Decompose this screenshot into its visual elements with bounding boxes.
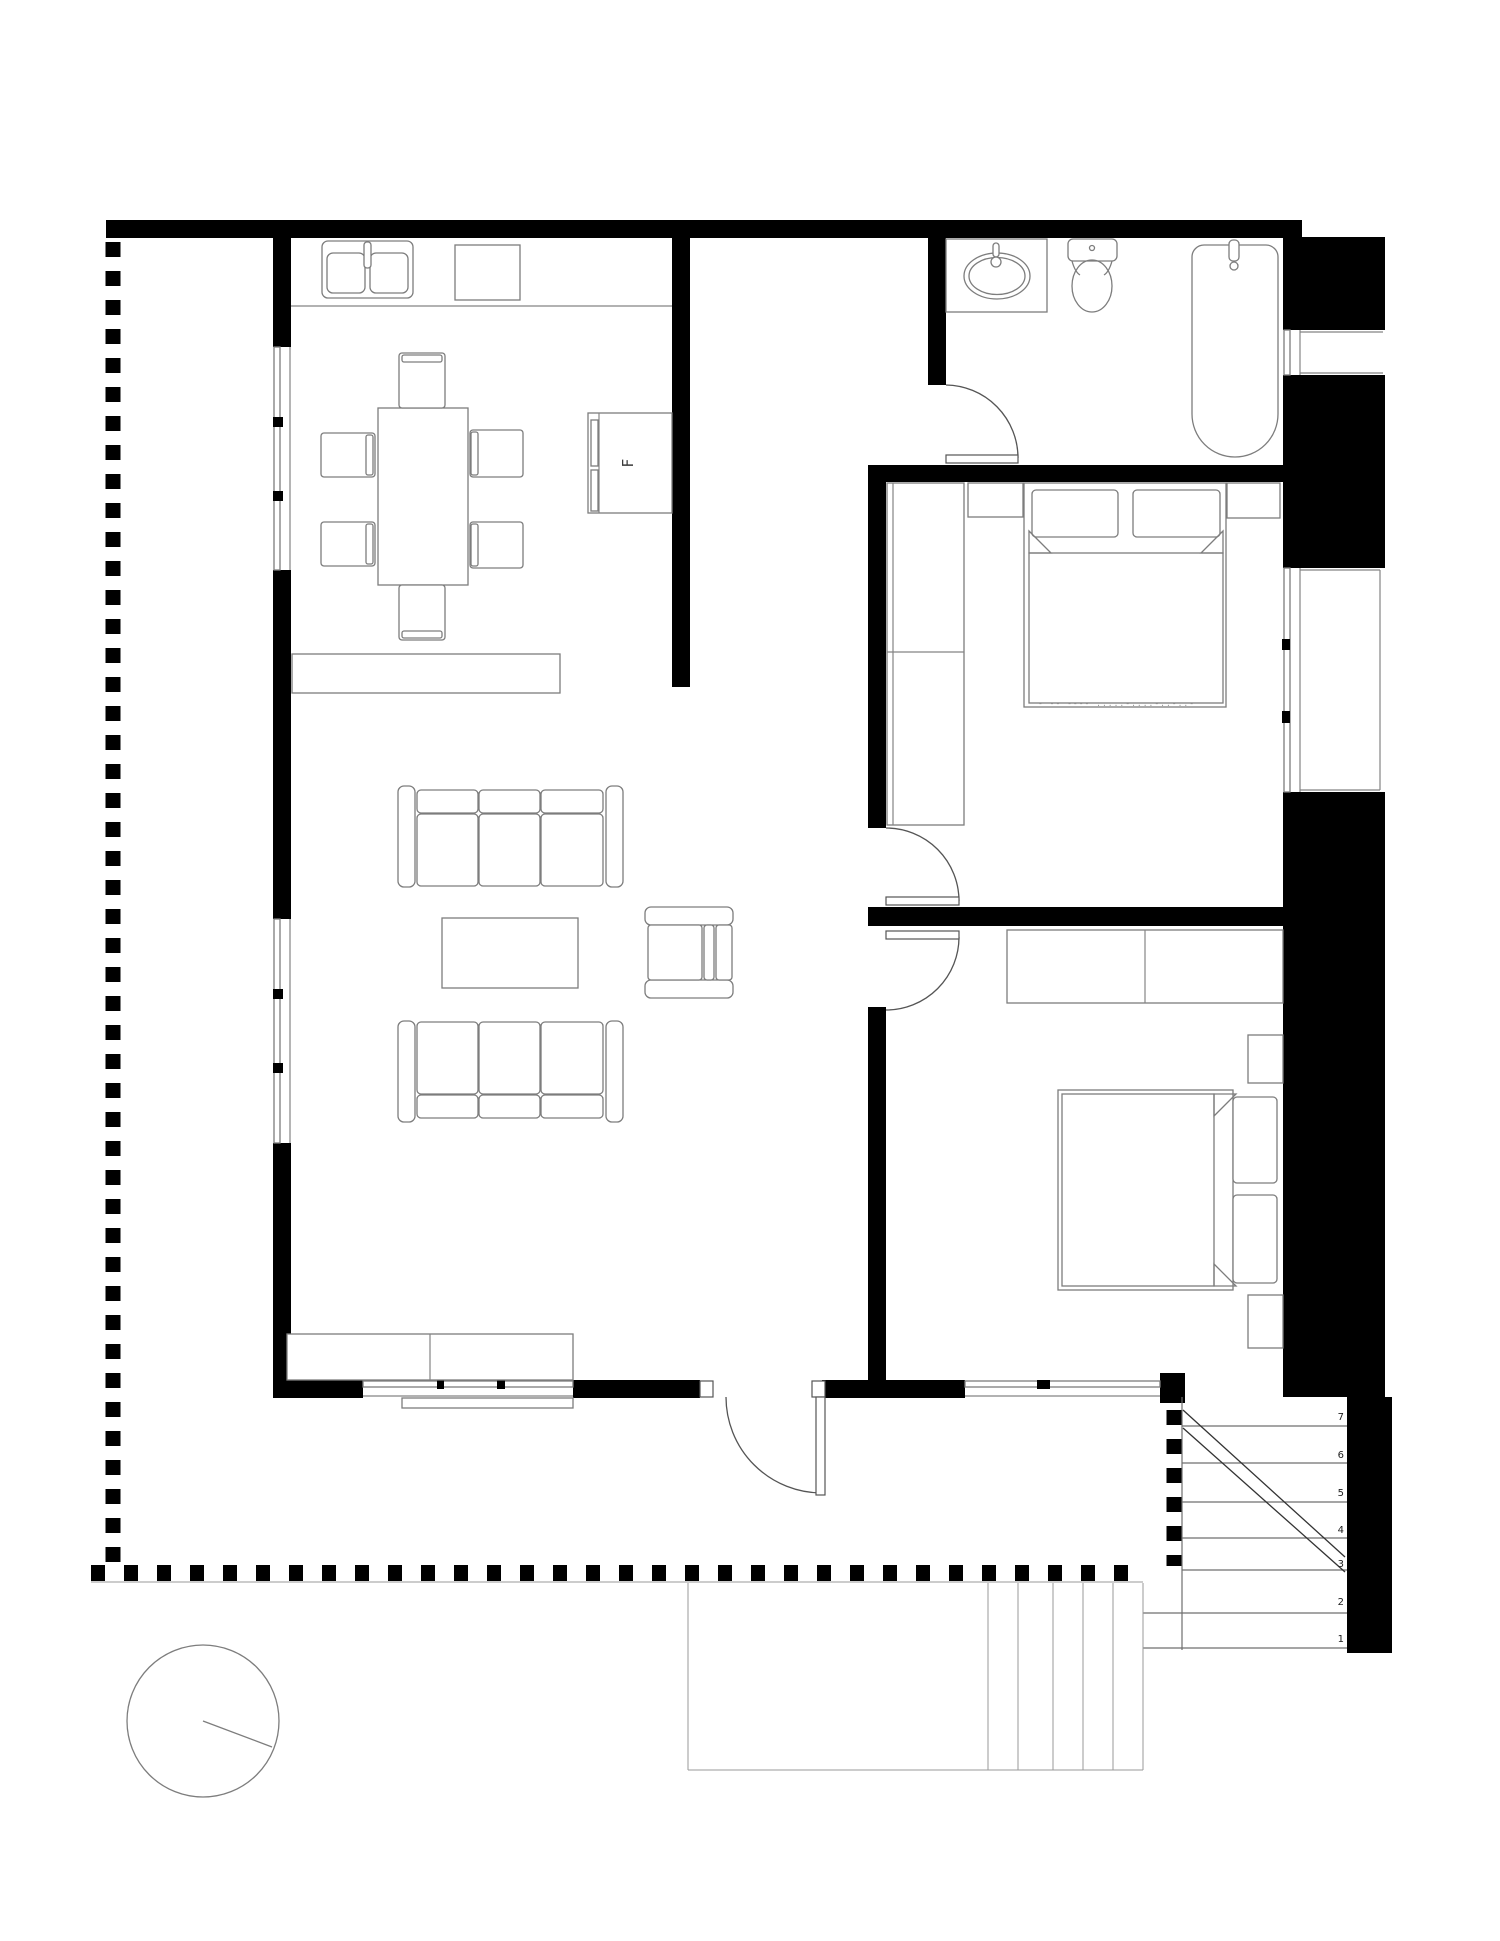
- dining-chair-left-1: [321, 433, 375, 477]
- stair-number: 4: [1338, 1525, 1344, 1536]
- wall-left-middle: [273, 570, 291, 919]
- toilet: [1068, 239, 1117, 312]
- bedroom2-closet: [1007, 930, 1283, 1003]
- window-mullion: [497, 1380, 505, 1389]
- bedroom1-nightstand-left: [968, 483, 1023, 517]
- bedroom2-bed: [1058, 1090, 1277, 1290]
- staircase: 7 6 5 4 3 2 1: [1143, 1397, 1347, 1650]
- window-mullion: [273, 989, 283, 999]
- dining-chair-right-1: [470, 430, 523, 477]
- window-mullion: [273, 417, 283, 427]
- stair-number: 5: [1338, 1488, 1344, 1499]
- sofa-south: [398, 1021, 623, 1122]
- sofa-back-cushion: [541, 1095, 603, 1118]
- wall-right-upper: [1283, 237, 1385, 330]
- wall-bottom-corner-stub: [1160, 1373, 1185, 1403]
- wall-bedroom2-left: [868, 1007, 886, 1398]
- armchair: [645, 907, 733, 998]
- kitchen-fridge: F: [588, 413, 672, 513]
- kitchen-sink: [322, 241, 413, 298]
- bathroom-vanity: [946, 239, 1047, 312]
- chair-back: [366, 435, 373, 475]
- toilet-bowl: [1072, 260, 1112, 312]
- sofa-arm: [606, 1021, 623, 1122]
- door-leaf: [886, 931, 959, 939]
- sink-basin-left: [327, 253, 365, 293]
- dining-chair-bottom: [399, 585, 445, 640]
- door-jamb: [812, 1381, 825, 1397]
- coffee-table: [442, 918, 578, 988]
- dining-table: [378, 408, 468, 585]
- window-mullion: [273, 1063, 283, 1073]
- window-bedroom2-bottom: [965, 1380, 1160, 1396]
- door-swing-arc: [886, 828, 959, 901]
- wall-top: [106, 220, 1302, 238]
- wall-bedroom1-left: [868, 482, 886, 828]
- kitchen-island: [292, 654, 560, 693]
- window-living-bottom: [363, 1380, 573, 1408]
- wall-bedroom-divider: [868, 907, 1283, 926]
- bedroom2-nightstand-bottom: [1248, 1295, 1283, 1348]
- bed-pillow: [1233, 1097, 1277, 1183]
- window-mullion: [1282, 711, 1290, 723]
- bedroom2-nightstand-top: [1248, 1035, 1283, 1083]
- chair-back: [471, 524, 478, 566]
- window-frame: [363, 1381, 573, 1387]
- stair-stringer: [1183, 1428, 1345, 1572]
- wall-bottom-2: [573, 1380, 700, 1398]
- bathtub-faucet: [1229, 240, 1239, 261]
- stair-number: 1: [1338, 1634, 1344, 1645]
- sofa-back-cushion: [479, 1095, 540, 1118]
- door-entry: [700, 1381, 825, 1495]
- dining-chair-top: [399, 353, 445, 408]
- fridge-handle: [591, 470, 598, 511]
- bedroom1-bed: - -- ---- .....-....-..-..-: [1024, 483, 1226, 708]
- chair-back: [366, 524, 373, 564]
- kitchen-cooktop: [455, 245, 520, 300]
- chair-back: [402, 631, 442, 638]
- door-leaf: [946, 455, 1018, 463]
- chair-back: [402, 355, 442, 362]
- wall-right-stairs: [1347, 1397, 1392, 1653]
- wall-right-mid1: [1283, 375, 1385, 568]
- sofa-arm: [398, 786, 415, 887]
- stair-number: 3: [1338, 1559, 1344, 1570]
- sofa-seat-cushion: [417, 814, 478, 886]
- door-swing-arc: [946, 385, 1018, 458]
- vanity-faucet-knob: [991, 257, 1001, 267]
- tv-bench: [287, 1334, 573, 1380]
- bedroom1-nightstand-right: [1227, 483, 1280, 518]
- sofa-arm: [398, 1021, 415, 1122]
- window-mullion: [437, 1380, 444, 1389]
- sofa-back-cushion: [479, 790, 540, 813]
- door-leaf: [886, 897, 959, 905]
- wall-right-mid2: [1283, 792, 1385, 1397]
- door-leaf: [816, 1397, 825, 1495]
- bathtub-body: [1192, 245, 1278, 457]
- door-jamb: [700, 1381, 713, 1397]
- door-bedroom2: [886, 931, 959, 1010]
- wall-bottom-3: [822, 1380, 965, 1398]
- armchair-arm: [645, 980, 733, 998]
- sofa-seat-cushion: [479, 814, 540, 886]
- wall-kitchen-hall: [672, 238, 690, 687]
- stair-number: 2: [1338, 1597, 1344, 1608]
- sofa-seat-cushion: [541, 814, 603, 886]
- sofa-seat-cushion: [541, 1022, 603, 1094]
- sofa-back-cushion: [541, 790, 603, 813]
- armchair-back: [704, 925, 714, 980]
- wall-bedroom1-top: [868, 465, 1283, 482]
- chair-back: [471, 432, 478, 475]
- floorplan-canvas: F: [0, 0, 1500, 1941]
- sink-faucet: [364, 242, 371, 268]
- window-frame: [274, 347, 280, 570]
- window-mullion: [1037, 1380, 1050, 1389]
- window-frame: [1284, 568, 1290, 792]
- bathtub-drain: [1230, 262, 1238, 270]
- window-sill: [402, 1398, 573, 1408]
- window-frame: [965, 1381, 1160, 1387]
- wall-left-upper: [273, 238, 291, 347]
- tree-symbol: [127, 1645, 279, 1797]
- sofa-seat-cushion: [417, 1022, 478, 1094]
- bed-pillow: [1032, 490, 1118, 537]
- sofa-seat-cushion: [479, 1022, 540, 1094]
- sofa-arm: [606, 786, 623, 887]
- window-frame: [1284, 330, 1290, 375]
- sofa-back-cushion: [417, 790, 478, 813]
- fridge-label: F: [619, 459, 637, 468]
- fridge-handle: [591, 420, 598, 466]
- window-mullion: [273, 491, 283, 501]
- dining-chair-right-2: [470, 522, 523, 568]
- stair-number: 6: [1338, 1450, 1344, 1461]
- bed-product-label: - -- ---- .....-....-..-..-: [1038, 699, 1195, 708]
- stair-stringer: [1183, 1410, 1345, 1557]
- door-bedroom1: [886, 828, 959, 905]
- window-living-left: [273, 919, 290, 1143]
- armchair-arm: [645, 907, 733, 925]
- armchair-seat: [648, 925, 702, 980]
- door-bathroom: [946, 385, 1018, 463]
- sofa-north: [398, 786, 623, 887]
- bathtub: [1192, 240, 1278, 457]
- vanity-faucet: [993, 243, 999, 257]
- sink-basin-right: [370, 253, 408, 293]
- window-bathroom-right: [1284, 330, 1383, 375]
- window-frame: [274, 919, 280, 1143]
- window-bedroom1-right: [1282, 568, 1380, 792]
- tree-radius-line: [203, 1721, 272, 1747]
- bedroom1-closet: [887, 483, 964, 825]
- wall-bottom-1: [273, 1380, 363, 1398]
- stair-number: 7: [1338, 1412, 1344, 1423]
- window-mullion: [1282, 639, 1290, 650]
- bed-pillow: [1133, 490, 1220, 537]
- bed-frame: [1058, 1090, 1233, 1290]
- closet-body: [887, 483, 964, 825]
- wall-bathroom-left: [928, 238, 946, 385]
- door-swing-arc: [886, 937, 959, 1010]
- dining-chair-left-2: [321, 522, 375, 566]
- sofa-back-cushion: [417, 1095, 478, 1118]
- armchair-back: [716, 925, 732, 980]
- dining-table-set: [321, 353, 523, 640]
- window-kitchen-left: [273, 347, 290, 570]
- porch: [688, 1583, 1143, 1770]
- bed-pillow: [1233, 1195, 1277, 1283]
- door-swing-arc: [726, 1397, 822, 1493]
